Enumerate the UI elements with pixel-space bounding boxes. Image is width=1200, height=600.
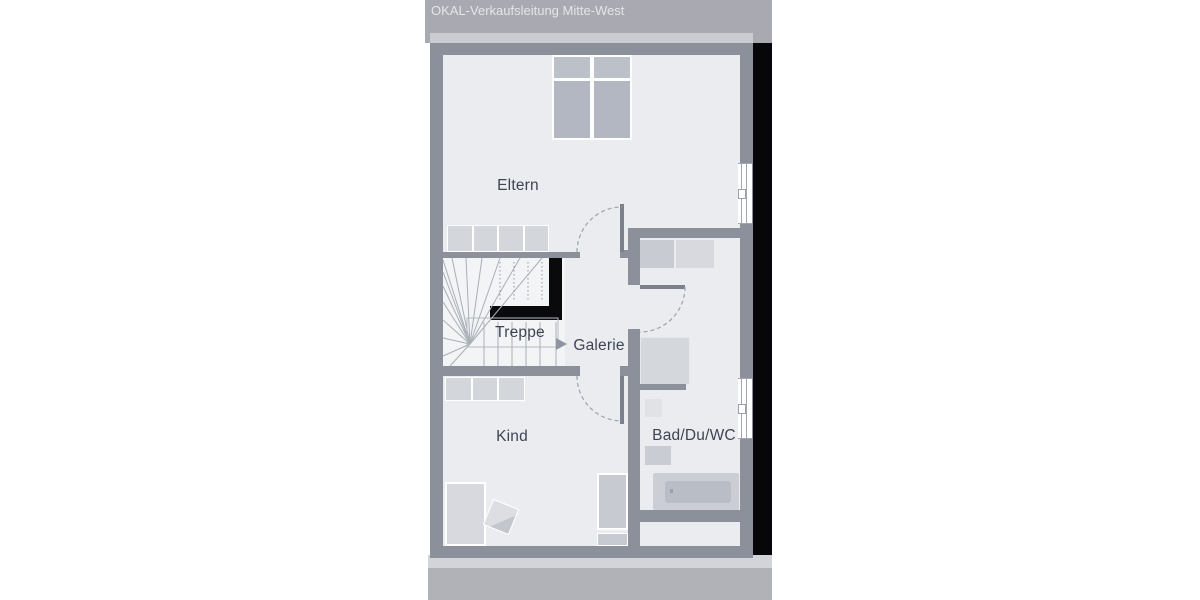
room-label-treppe: Treppe: [486, 324, 554, 342]
wardrobe-kind-right: [597, 473, 628, 530]
stair-railing-horizontal: [490, 306, 562, 320]
watermark-text: OKAL-Verkaufsleitung Mitte-West: [431, 3, 624, 18]
window-handle: [738, 404, 746, 414]
bed-pillow: [594, 57, 630, 78]
washbasin-counter-2: [676, 240, 714, 268]
bed-mattress: [554, 81, 590, 138]
room-label-galerie: Galerie: [564, 337, 634, 355]
wall-exterior-right: [740, 43, 753, 558]
washbasin-counter: [640, 240, 674, 268]
bed-kind: [445, 482, 486, 546]
window-handle: [738, 189, 746, 199]
room-label-bad: Bad/Du/WC: [648, 427, 740, 445]
bed-pillow: [554, 57, 590, 78]
window-frame-line: [746, 164, 747, 223]
room-label-kind: Kind: [477, 428, 547, 446]
wardrobe-section: [446, 378, 471, 400]
wardrobe-eltern: [447, 225, 549, 252]
bed-double-eltern: [552, 55, 632, 140]
bed-mattress: [447, 484, 484, 544]
wardrobe-section: [499, 226, 523, 251]
wall-kind-top: [443, 366, 580, 376]
cabinet-kind-right-small: [597, 533, 628, 546]
bottom-band: [428, 568, 772, 600]
wardrobe-section: [448, 226, 472, 251]
floorplan-page: OKAL-Verkaufsleitung Mitte-West: [0, 0, 1200, 600]
wardrobe-section: [474, 226, 498, 251]
wall-exterior-bottom: [430, 546, 753, 558]
top-light-strip: [430, 33, 753, 43]
wardrobe-kind-top: [445, 377, 525, 401]
wall-bath-top: [628, 228, 740, 238]
room-label-eltern: Eltern: [480, 177, 556, 195]
wardrobe-section: [473, 378, 498, 400]
wall-exterior-left: [430, 43, 443, 558]
bed-mattress: [594, 81, 630, 138]
toilet: [645, 399, 662, 417]
toilet-2: [645, 446, 671, 465]
shower-partition: [640, 384, 686, 390]
wall-bath-left-lower: [628, 329, 640, 546]
wall-exterior-top: [430, 43, 753, 55]
window-upper-right: [738, 163, 752, 224]
wall-bath-bottom: [640, 510, 740, 522]
bathtub-drain: [670, 489, 673, 493]
wardrobe-section: [525, 226, 549, 251]
window-frame-line: [746, 379, 747, 438]
bathtub-inner: [665, 481, 731, 503]
wardrobe-section: [499, 378, 524, 400]
shower-tray: [640, 337, 690, 385]
window-lower-right: [738, 378, 752, 439]
party-wall: [753, 43, 772, 555]
